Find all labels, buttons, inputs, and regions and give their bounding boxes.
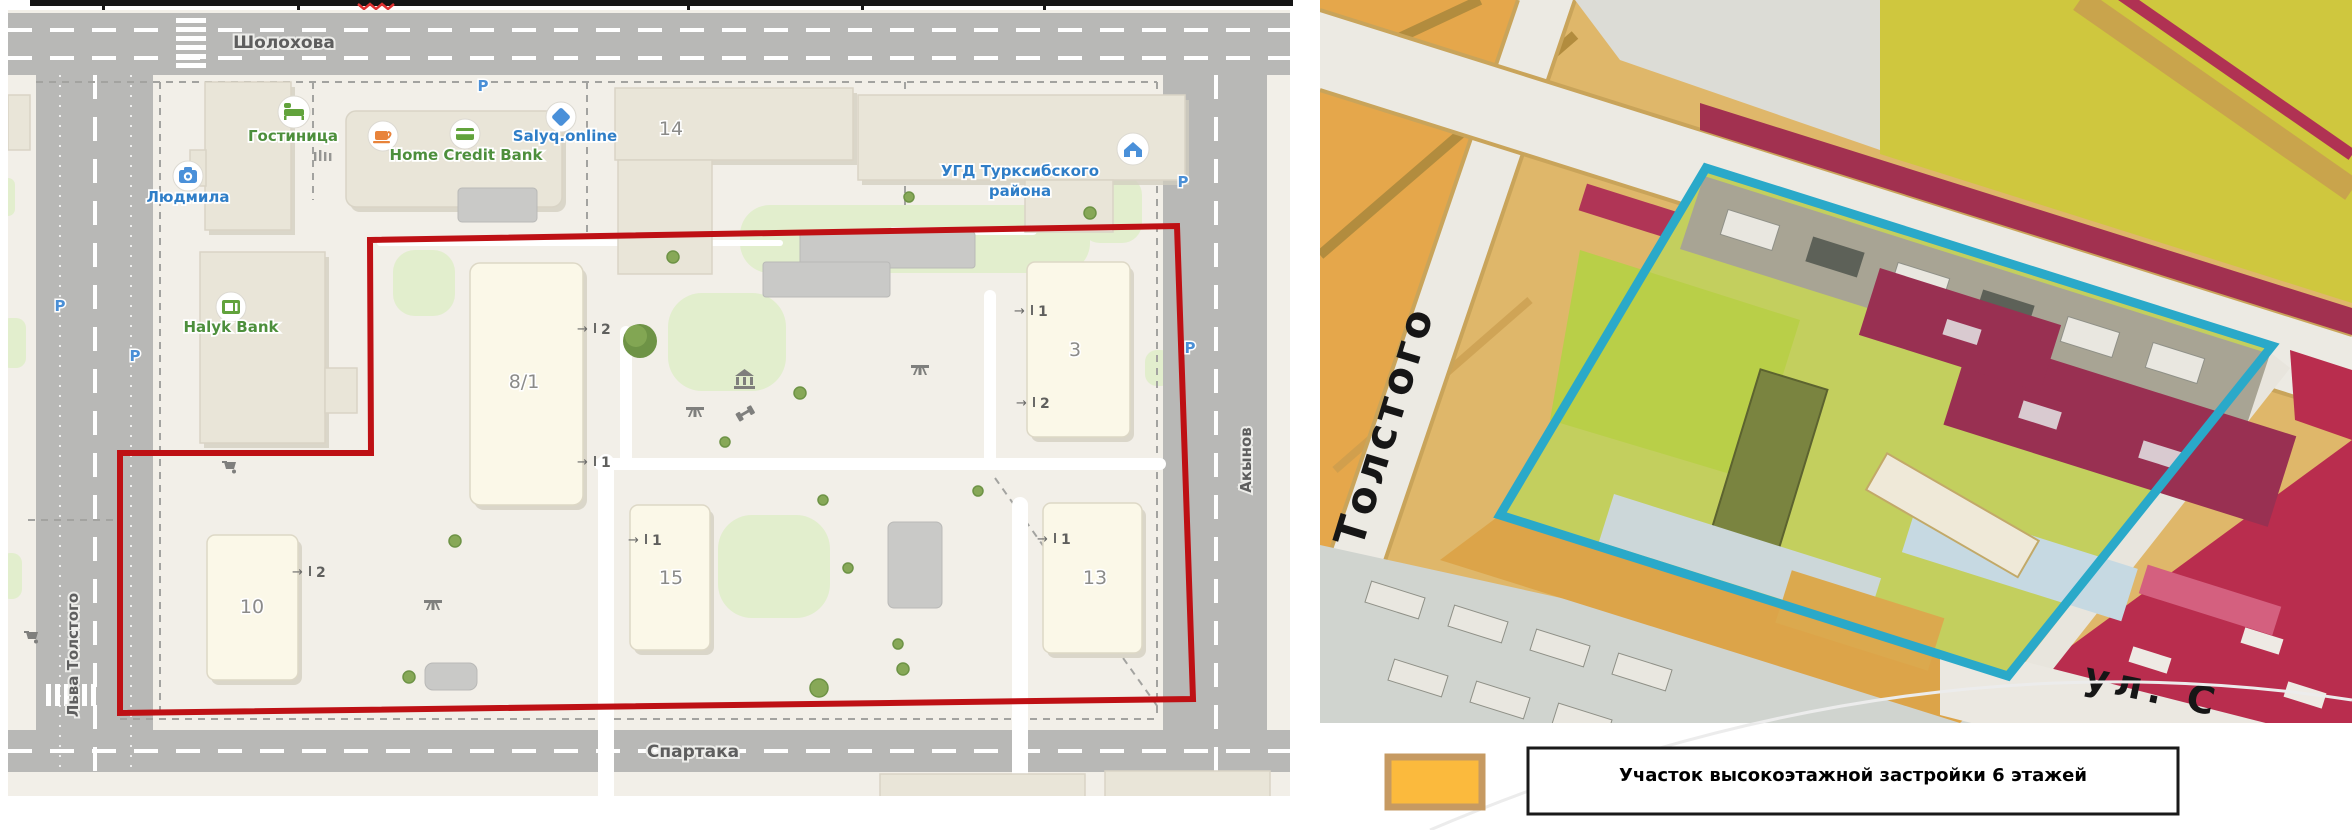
- poi-label: Людмила: [146, 188, 229, 206]
- document-page: Шолохова Спартака Льва Толстого Акынов P…: [0, 0, 2352, 830]
- bank-card-icon: [456, 128, 474, 140]
- svg-text:1: 1: [652, 533, 662, 549]
- poi-label: Salyq.online: [513, 127, 617, 145]
- svg-text:→: →: [577, 455, 588, 470]
- svg-text:1: 1: [1061, 532, 1071, 548]
- atm-icon: [222, 300, 240, 314]
- coffee-cup-icon: [373, 131, 391, 143]
- parking-icon: P: [1185, 339, 1196, 357]
- building-number: 3: [1069, 339, 1081, 361]
- parking-icon: P: [1178, 173, 1189, 191]
- building-number: 15: [659, 567, 683, 589]
- svg-text:1: 1: [601, 455, 611, 471]
- poi-label: района: [989, 182, 1051, 200]
- svg-text:→: →: [292, 565, 303, 580]
- svg-text:→: →: [577, 322, 588, 337]
- building-number: 10: [240, 596, 264, 618]
- parking-icon: P: [130, 347, 141, 365]
- street-label-sholokhova: Шолохова: [233, 33, 335, 53]
- zoning-map: Толстого ул. С: [1272, 0, 2352, 820]
- poi-label: Halyk Bank: [183, 318, 279, 336]
- utility-building: [888, 522, 942, 608]
- svg-text:→: →: [1016, 396, 1027, 411]
- legend: Участок высокоэтажной застройки 6 этажей: [1388, 748, 2178, 814]
- building-number: 13: [1083, 567, 1107, 589]
- svg-text:→: →: [1014, 304, 1025, 319]
- svg-text:1: 1: [1038, 304, 1048, 320]
- building-fragment: [880, 774, 1085, 798]
- building-number: 8/1: [509, 371, 540, 393]
- svg-text:2: 2: [1040, 396, 1050, 412]
- maps-figure: Шолохова Спартака Льва Толстого Акынов P…: [0, 0, 2352, 830]
- svg-text:→: →: [628, 533, 639, 548]
- poi-label: УГД Турксибского: [941, 162, 1099, 180]
- poi-label: Home Credit Bank: [390, 146, 544, 164]
- parking-icon: P: [55, 297, 66, 315]
- svg-text:2: 2: [601, 322, 611, 338]
- svg-text:2: 2: [316, 565, 326, 581]
- legend-swatch: [1388, 757, 1482, 807]
- utility-building: [458, 188, 537, 222]
- svg-text:→: →: [1037, 532, 1048, 547]
- utility-building: [425, 663, 477, 690]
- parking-icon: P: [478, 77, 489, 95]
- city-map-2gis: Шолохова Спартака Льва Толстого Акынов P…: [0, 10, 1290, 798]
- street-label-spartaka: Спартака: [647, 742, 739, 762]
- building-number: 14: [659, 118, 683, 140]
- poi-label: Гостиница: [248, 127, 338, 145]
- street-label-akynov: Акынов: [1237, 427, 1255, 493]
- street-label-lva-tolstogo: Льва Толстого: [64, 593, 82, 717]
- legend-label: Участок высокоэтажной застройки 6 этажей: [1619, 765, 2087, 786]
- building-fragment: [1105, 771, 1270, 798]
